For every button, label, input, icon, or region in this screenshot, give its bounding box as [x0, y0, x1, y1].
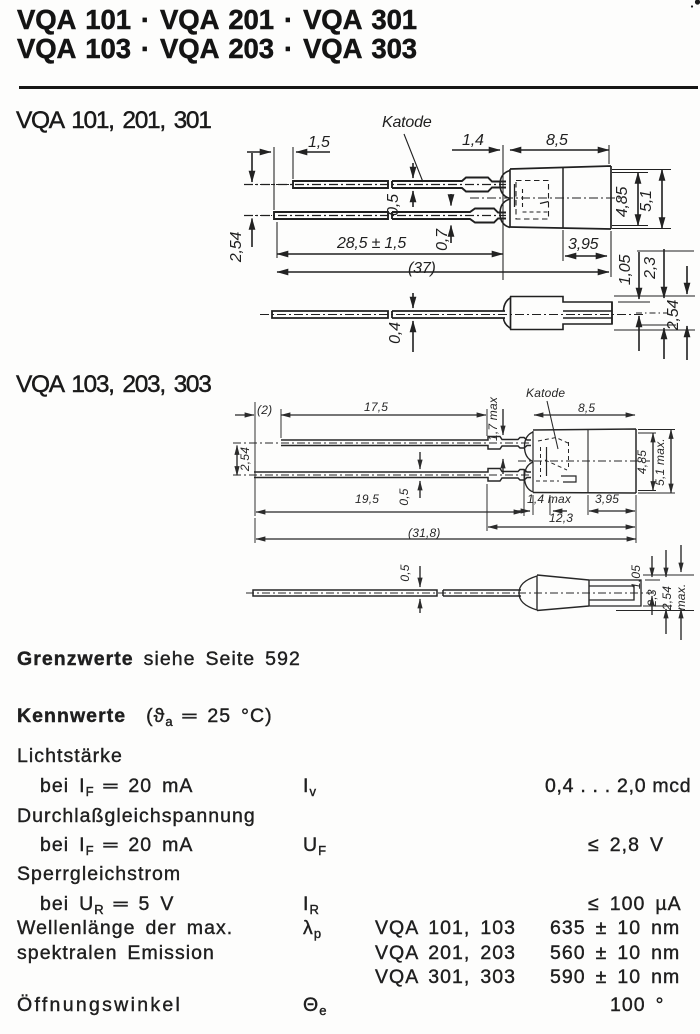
svg-text:2,3: 2,3 [645, 589, 659, 607]
svg-text:0,4: 0,4 [387, 322, 404, 344]
svg-text:1,5: 1,5 [308, 134, 330, 151]
svg-text:4,85: 4,85 [614, 187, 631, 218]
svg-text:5,1: 5,1 [638, 190, 655, 212]
svg-text:0,5: 0,5 [398, 564, 412, 581]
svg-text:5,1 max.: 5,1 max. [653, 438, 667, 486]
svg-text:Katode: Katode [526, 386, 565, 400]
svg-text:1,4 max: 1,4 max [527, 492, 572, 506]
svg-text:12,3: 12,3 [549, 511, 573, 525]
svg-text:28,5 ± 1,5: 28,5 ± 1,5 [336, 235, 406, 252]
svg-text:2,3: 2,3 [642, 257, 659, 280]
svg-text:0,7: 0,7 [434, 228, 451, 251]
svg-text:1,05: 1,05 [629, 565, 643, 589]
svg-text:2,54: 2,54 [665, 300, 682, 332]
svg-text:2,54: 2,54 [228, 232, 245, 264]
svg-text:1,05: 1,05 [617, 255, 634, 286]
svg-text:0,5: 0,5 [385, 194, 402, 216]
svg-text:4,85: 4,85 [635, 450, 649, 474]
svg-text:2,54: 2,54 [238, 447, 252, 472]
svg-text:17,5: 17,5 [364, 400, 388, 414]
svg-text:(2): (2) [257, 403, 272, 417]
svg-text:(31,8): (31,8) [408, 526, 441, 540]
svg-text:8,5: 8,5 [546, 132, 568, 149]
svg-text:8,5: 8,5 [578, 401, 595, 415]
svg-text:2,54: 2,54 [660, 586, 674, 611]
svg-text:3,95: 3,95 [595, 492, 619, 506]
svg-text:1,7 max: 1,7 max [486, 396, 500, 441]
svg-text:max.: max. [674, 584, 688, 611]
svg-text:1,4: 1,4 [462, 132, 484, 149]
svg-text:(37): (37) [408, 260, 436, 277]
svg-text:0,5: 0,5 [397, 488, 411, 505]
svg-text:Katode: Katode [382, 114, 432, 131]
svg-text:3,95: 3,95 [568, 236, 599, 253]
svg-text:19,5: 19,5 [355, 492, 379, 506]
